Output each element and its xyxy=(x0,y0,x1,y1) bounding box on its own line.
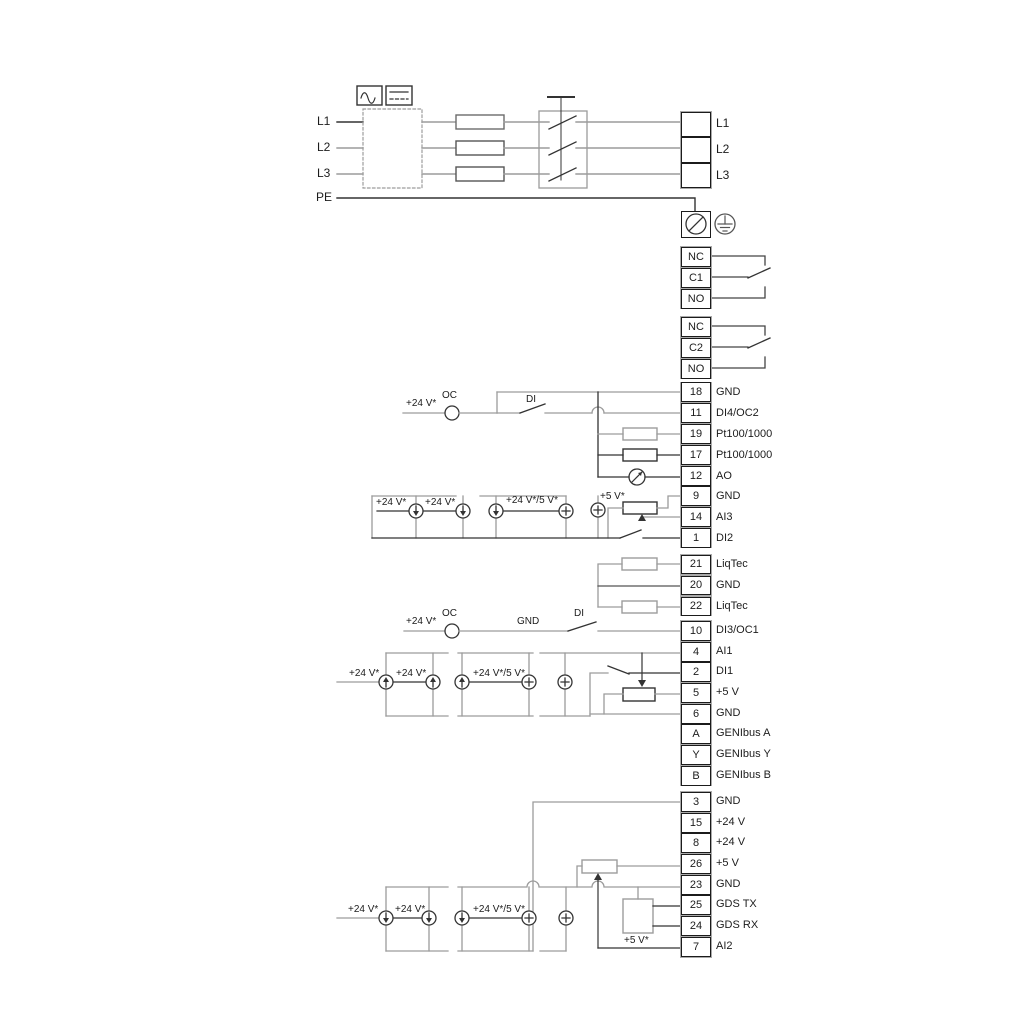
gds-sensor-box xyxy=(623,887,681,933)
terminal-5: 5 xyxy=(681,683,711,703)
terminal-17-label: Pt100/1000 xyxy=(716,449,772,461)
di3-oc-label: OC xyxy=(442,608,457,619)
terminal-8: 8 xyxy=(681,833,711,853)
voltage-source-icon xyxy=(559,503,605,518)
pt100-sensor-1 xyxy=(598,428,681,440)
terminal-3-label: GND xyxy=(716,795,740,807)
terminal-20: 20 xyxy=(681,576,711,595)
terminal-10-label: DI3/OC1 xyxy=(716,624,759,636)
ac-waveform-icon xyxy=(357,86,382,105)
terminal-6: 6 xyxy=(681,704,711,724)
terminal-11-label: DI4/OC2 xyxy=(716,407,759,419)
relay1-contact xyxy=(711,256,770,298)
terminal-relay1-c1: C1 xyxy=(681,268,711,288)
ai1-supply3-label: +24 V*/5 V* xyxy=(473,668,525,679)
liqtec-section xyxy=(598,558,681,613)
terminal-18: 18 xyxy=(681,382,711,402)
voltage-source-icon xyxy=(522,911,573,925)
analog-output-meter-icon xyxy=(598,469,681,485)
terminal-5-label: +5 V xyxy=(716,686,739,698)
gds-5v-label: +5 V* xyxy=(624,935,649,946)
di4-pt100-ao-section xyxy=(403,392,681,485)
terminal-24-label: GDS RX xyxy=(716,919,758,931)
terminal-out-l3 xyxy=(681,163,711,188)
di4-switch xyxy=(520,404,545,413)
emc-filter-box xyxy=(363,109,422,188)
mains-l3-label: L3 xyxy=(317,167,330,180)
terminal-12-label: AO xyxy=(716,470,732,482)
shield-terminal-box xyxy=(681,211,711,238)
schematic-lines xyxy=(0,0,1024,1024)
dc-icon xyxy=(386,86,412,105)
liqtec-sensor-1 xyxy=(622,558,657,570)
terminal-b: B xyxy=(681,766,711,786)
terminal-y: Y xyxy=(681,745,711,765)
terminal-14: 14 xyxy=(681,507,711,527)
terminal-23: 23 xyxy=(681,875,711,895)
terminal-9: 9 xyxy=(681,486,711,506)
protective-earth-icon xyxy=(715,214,735,234)
open-collector-icon xyxy=(445,624,459,638)
terminal-24: 24 xyxy=(681,916,711,936)
terminal-7: 7 xyxy=(681,937,711,957)
terminal-25: 25 xyxy=(681,895,711,915)
terminal-12: 12 xyxy=(681,466,711,486)
terminal-3: 3 xyxy=(681,792,711,812)
open-collector-icon xyxy=(445,406,459,420)
terminal-10: 10 xyxy=(681,621,711,641)
pt100-sensor-2 xyxy=(598,449,681,461)
ai1-supply2-label: +24 V* xyxy=(396,668,426,679)
terminal-6-label: GND xyxy=(716,707,740,719)
di1-switch xyxy=(608,666,629,674)
mains-input-section xyxy=(337,86,695,211)
pe-wire xyxy=(337,198,695,211)
voltage-source-icon xyxy=(522,675,572,689)
mains-l2-label: L2 xyxy=(317,141,330,154)
terminal-22-label: LiqTec xyxy=(716,600,748,612)
ai3-5v-label: +5 V* xyxy=(600,491,625,502)
terminal-8-label: +24 V xyxy=(716,836,745,848)
di4-di-label: DI xyxy=(526,394,536,405)
terminal-26-label: +5 V xyxy=(716,857,739,869)
ai3-potentiometer xyxy=(608,496,681,538)
di3-row xyxy=(404,622,681,638)
di2-switch xyxy=(620,530,641,538)
wiring-diagram: L1 L2 L3 PE L1 L2 L3 NC C1 NO NC C2 NO 1… xyxy=(0,0,1024,1024)
terminal-b-label: GENIbus B xyxy=(716,769,771,781)
ai1-di1-section xyxy=(337,653,681,716)
current-source-icon xyxy=(409,504,503,518)
out-l2-label: L2 xyxy=(716,143,729,156)
terminal-22: 22 xyxy=(681,597,711,616)
terminal-2-label: DI1 xyxy=(716,665,733,677)
terminal-23-label: GND xyxy=(716,878,740,890)
fuse-l2 xyxy=(456,141,504,155)
terminal-4-label: AI1 xyxy=(716,645,733,657)
terminal-15-label: +24 V xyxy=(716,816,745,828)
terminal-relay1-nc: NC xyxy=(681,247,711,267)
ai2-supply2-label: +24 V* xyxy=(395,904,425,915)
terminal-19: 19 xyxy=(681,424,711,444)
terminal-9-label: GND xyxy=(716,490,740,502)
terminal-y-label: GENIbus Y xyxy=(716,748,771,760)
di4-oc-label: OC xyxy=(442,390,457,401)
terminal-relay2-no: NO xyxy=(681,359,711,379)
terminal-20-label: GND xyxy=(716,579,740,591)
terminal-21-label: LiqTec xyxy=(716,558,748,570)
terminal-11: 11 xyxy=(681,403,711,423)
di3-di-label: DI xyxy=(574,608,584,619)
terminal-7-label: AI2 xyxy=(716,940,733,952)
terminal-relay1-no: NO xyxy=(681,289,711,309)
liqtec-sensor-2 xyxy=(622,601,657,613)
terminal-17: 17 xyxy=(681,445,711,465)
ai2-supply1-label: +24 V* xyxy=(348,904,378,915)
terminal-14-label: AI3 xyxy=(716,511,733,523)
fuse-l1 xyxy=(456,115,504,129)
di3-switch xyxy=(568,622,596,631)
terminal-25-label: GDS TX xyxy=(716,898,757,910)
out-l1-label: L1 xyxy=(716,117,729,130)
terminal-relay2-nc: NC xyxy=(681,317,711,337)
terminal-15: 15 xyxy=(681,813,711,833)
relay2-contact xyxy=(711,326,770,368)
terminal-19-label: Pt100/1000 xyxy=(716,428,772,440)
terminal-relay2-c2: C2 xyxy=(681,338,711,358)
ai3-supply3-label: +24 V*/5 V* xyxy=(506,495,558,506)
terminal-4: 4 xyxy=(681,642,711,662)
mains-l1-label: L1 xyxy=(317,115,330,128)
terminal-a-label: GENIbus A xyxy=(716,727,770,739)
terminal-26: 26 xyxy=(681,854,711,874)
terminal-a: A xyxy=(681,724,711,744)
fuse-l3 xyxy=(456,167,504,181)
terminal-out-l1 xyxy=(681,112,711,137)
out-l3-label: L3 xyxy=(716,169,729,182)
ai2-supply3-label: +24 V*/5 V* xyxy=(473,904,525,915)
ai2-gds-section xyxy=(337,802,681,951)
di3-supply-label: +24 V* xyxy=(406,616,436,627)
terminal-1: 1 xyxy=(681,528,711,548)
terminal-out-l2 xyxy=(681,137,711,163)
ai3-supply2-label: +24 V* xyxy=(425,497,455,508)
di3-gnd-label: GND xyxy=(517,616,539,627)
ai1-potentiometer xyxy=(604,653,681,714)
terminal-18-label: GND xyxy=(716,386,740,398)
mains-pe-label: PE xyxy=(316,191,332,204)
ai3-supply1-label: +24 V* xyxy=(376,497,406,508)
terminal-1-label: DI2 xyxy=(716,532,733,544)
terminal-2: 2 xyxy=(681,662,711,682)
ai1-supply1-label: +24 V* xyxy=(349,668,379,679)
di4-supply-label: +24 V* xyxy=(406,398,436,409)
disconnect-switch xyxy=(504,97,681,188)
terminal-21: 21 xyxy=(681,555,711,574)
